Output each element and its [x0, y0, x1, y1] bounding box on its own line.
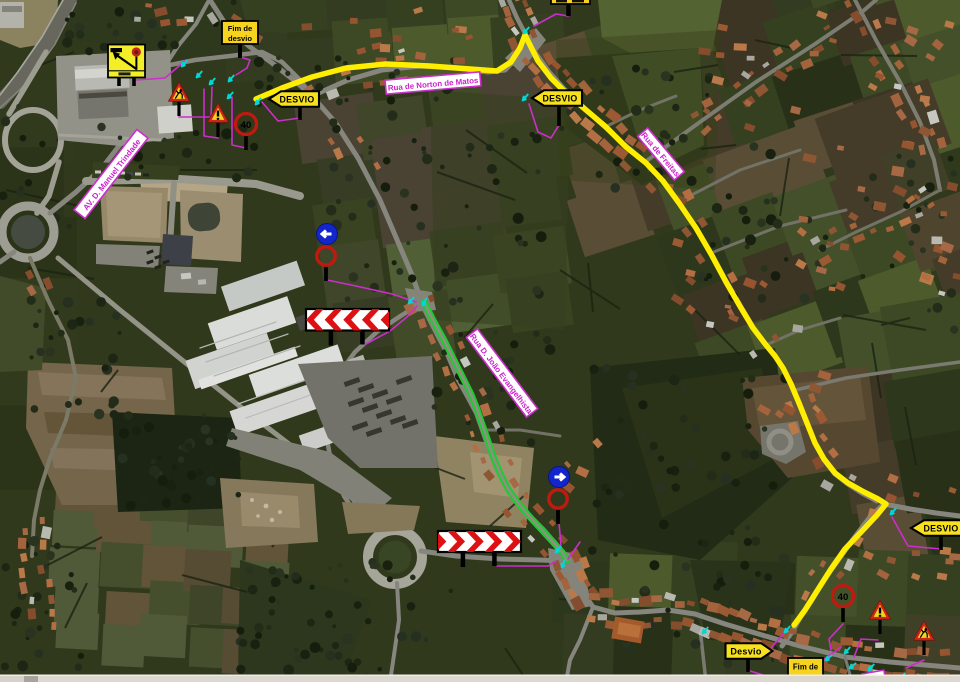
svg-text:Desvio: Desvio [730, 646, 762, 656]
svg-text:40: 40 [241, 120, 252, 131]
svg-text:DESVIO: DESVIO [279, 94, 314, 104]
svg-text:DESVIO: DESVIO [542, 93, 577, 103]
svg-text:Fim de: Fim de [793, 663, 819, 672]
svg-text:40: 40 [838, 592, 849, 603]
svg-text:Fim de: Fim de [228, 24, 252, 33]
svg-text:desvio: desvio [228, 34, 252, 43]
svg-text:DESVIO: DESVIO [923, 523, 958, 533]
